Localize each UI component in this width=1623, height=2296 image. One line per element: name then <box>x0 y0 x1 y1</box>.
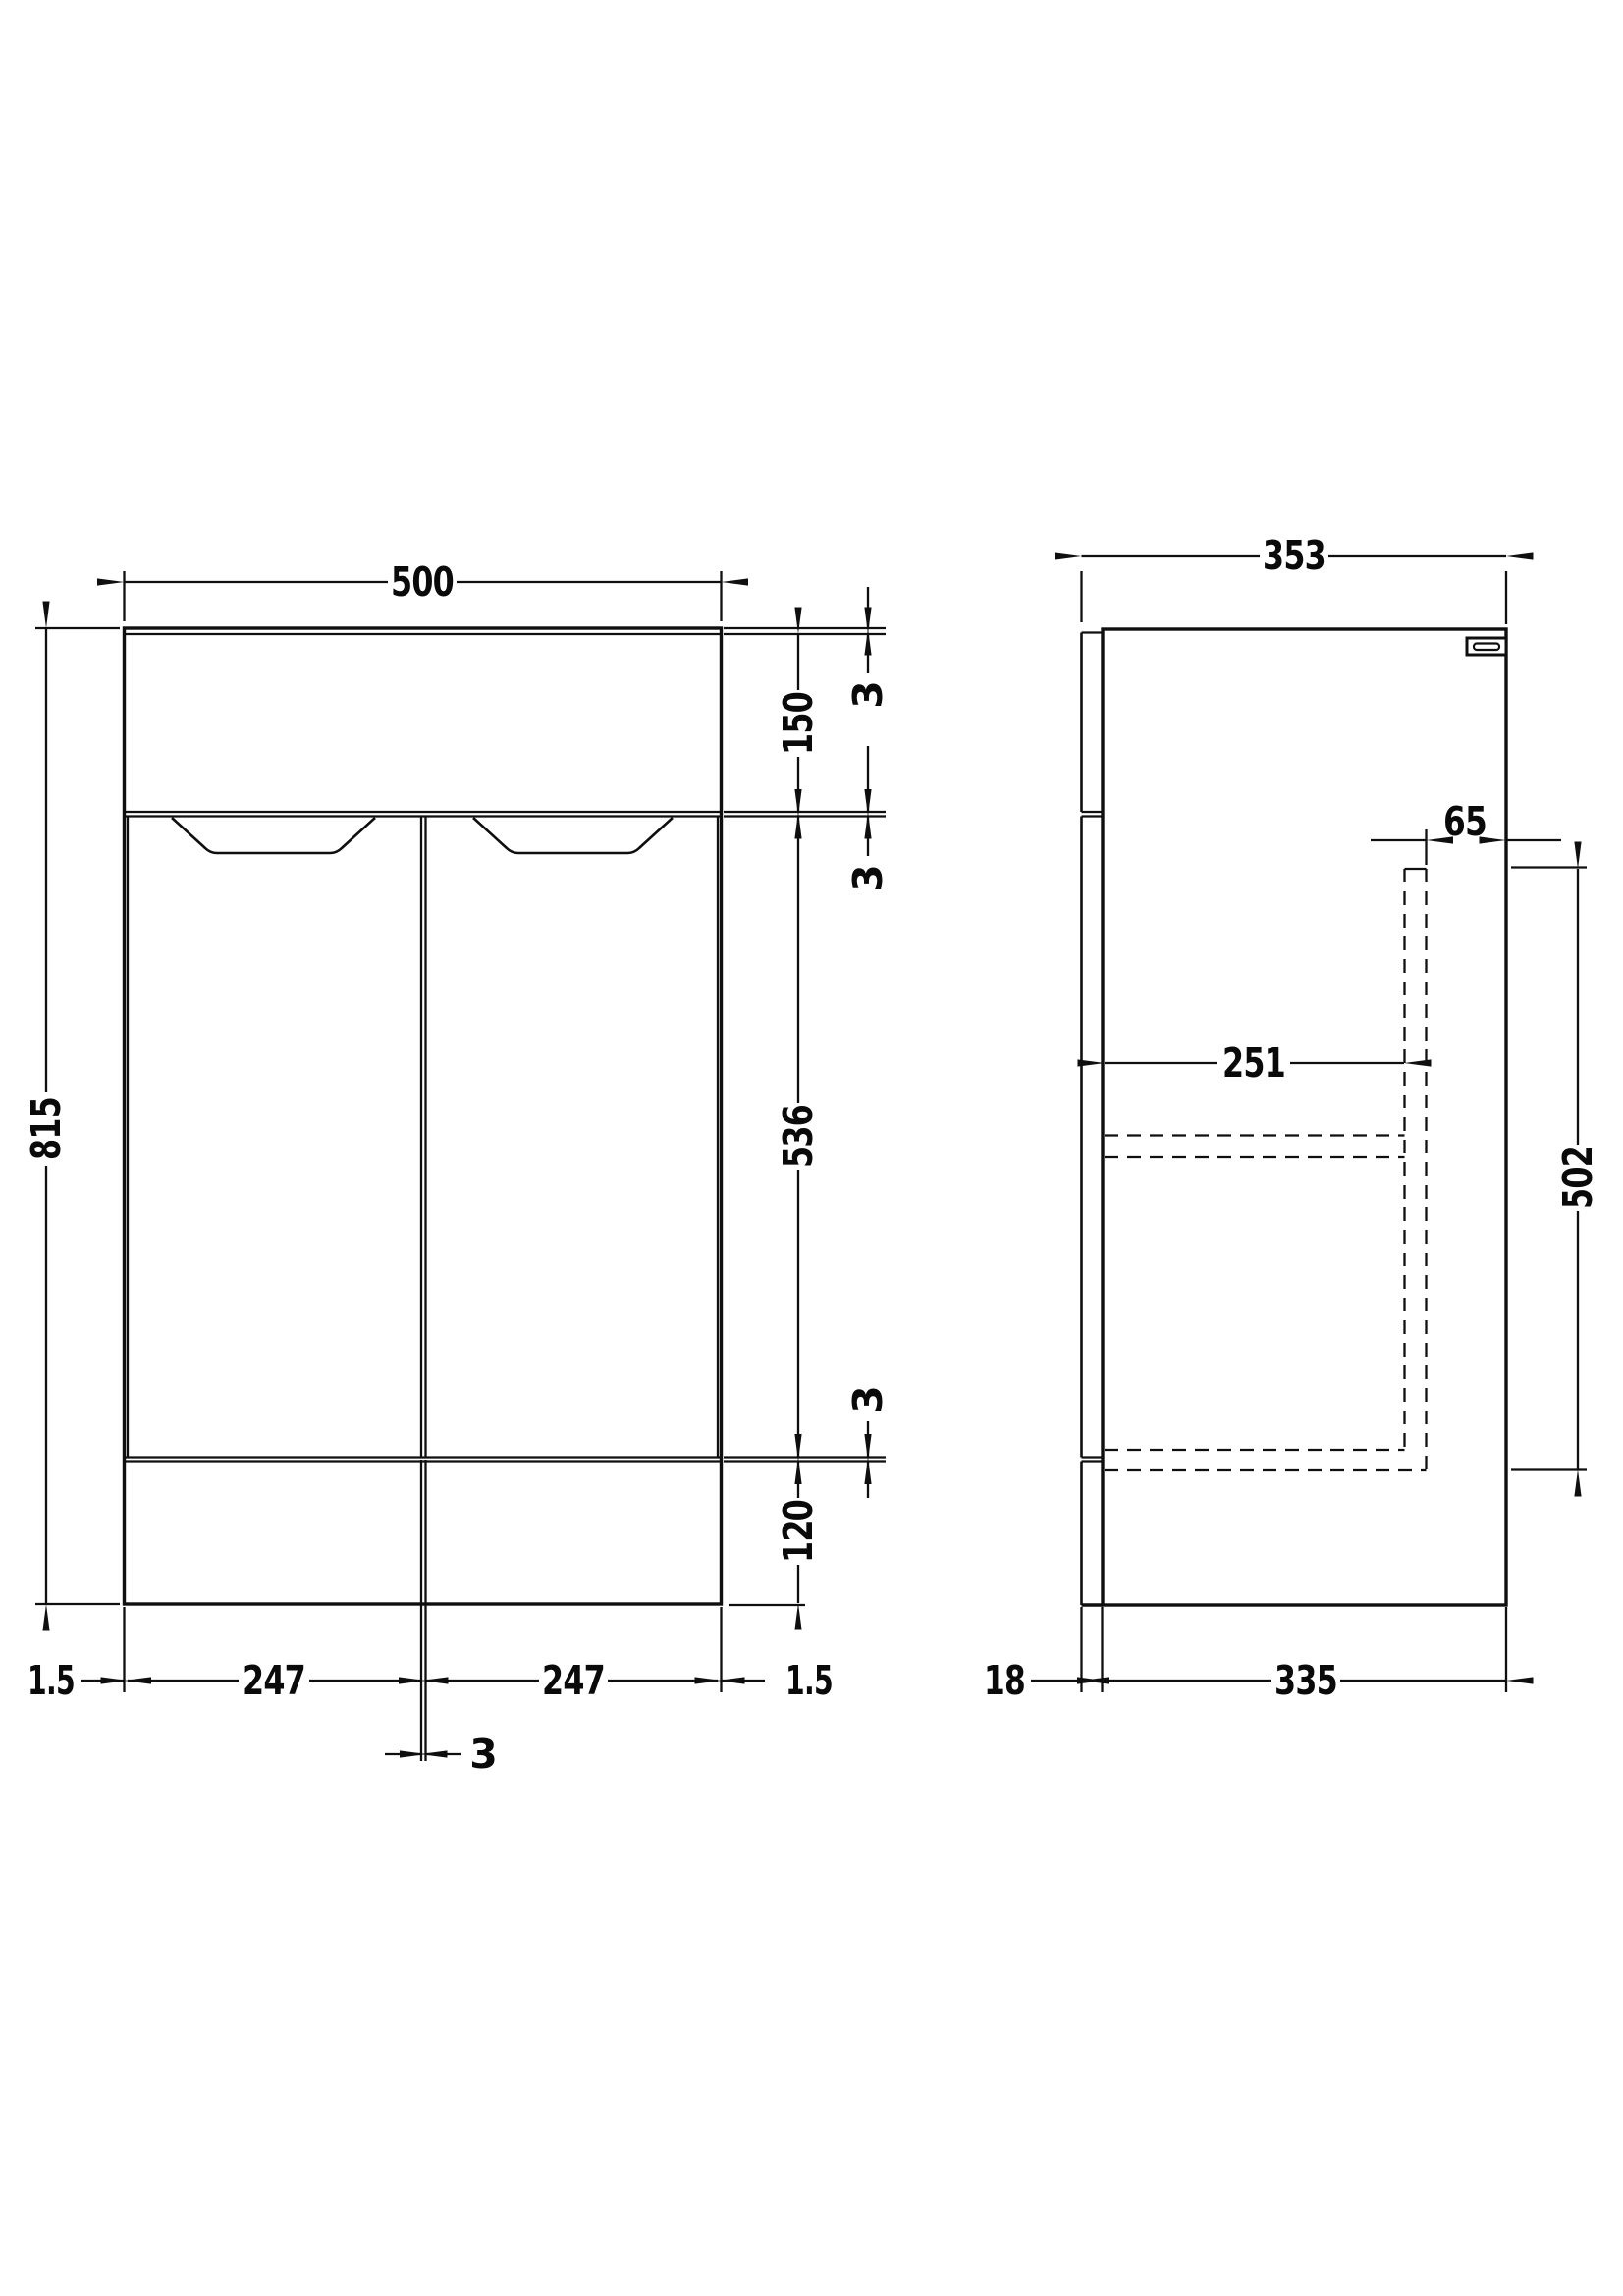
dim-side-overall-depth: 353 <box>1082 532 1507 624</box>
dim-front-overall-height: 815 <box>23 628 120 1604</box>
dim-front-door-height: 536 <box>775 817 822 1458</box>
dim-side-internal-height: 502 <box>1511 868 1601 1470</box>
side-elevation-view <box>1082 629 1507 1605</box>
dim-label-internal-height: 502 <box>1554 1147 1601 1209</box>
dim-label-gap-top: 3 <box>844 681 892 709</box>
vanity-unit-technical-drawing: 500 815 150 536 120 3 <box>0 0 1623 2296</box>
dim-label-gap-middle: 3 <box>844 865 892 892</box>
dim-front-gap-bottom: 3 <box>844 1386 892 1498</box>
dim-label-gap-bottom: 3 <box>844 1386 892 1414</box>
dim-side-internal-depth: 251 <box>1105 1040 1404 1087</box>
dim-label-carcass-depth: 335 <box>1274 1657 1337 1704</box>
dim-label-void-offset: 65 <box>1443 798 1487 845</box>
dim-label-right-door-width: 247 <box>542 1657 605 1704</box>
side-carcass-outline <box>1103 629 1506 1605</box>
dim-front-top-panel-height: 150 <box>775 634 822 812</box>
left-door-handle-recess <box>172 818 375 853</box>
dim-side-void-offset: 65 <box>1371 798 1561 865</box>
dim-label-center-door-gap: 3 <box>469 1731 497 1778</box>
dim-front-overall-width: 500 <box>125 559 722 621</box>
wall-bracket-icon <box>1467 638 1506 655</box>
dim-label-right-edge-gap: 1.5 <box>785 1657 833 1704</box>
dim-label-overall-width: 500 <box>391 559 454 606</box>
dim-label-door-thickness: 18 <box>984 1657 1025 1704</box>
dim-label-internal-depth: 251 <box>1222 1040 1285 1087</box>
dim-label-overall-height: 815 <box>23 1097 70 1160</box>
front-elevation-view <box>125 628 722 1604</box>
dim-front-bottom-widths: 1.5 247 247 1.5 3 <box>27 1460 833 1778</box>
dim-label-left-door-width: 247 <box>243 1657 305 1704</box>
dim-label-left-edge-gap: 1.5 <box>27 1657 75 1704</box>
right-door-handle-recess <box>473 818 673 853</box>
dim-label-top-panel-height: 150 <box>775 692 822 755</box>
dim-front-gap-middle: 3 <box>844 746 892 892</box>
dim-front-gap-top: 3 <box>844 587 892 709</box>
dim-label-door-height: 536 <box>775 1105 822 1168</box>
dim-label-overall-depth: 353 <box>1263 532 1325 579</box>
dim-label-plinth-height: 120 <box>775 1500 822 1563</box>
dim-side-bottom-depths: 18 335 <box>984 1607 1506 1704</box>
dim-front-plinth-height: 120 <box>775 1462 822 1604</box>
